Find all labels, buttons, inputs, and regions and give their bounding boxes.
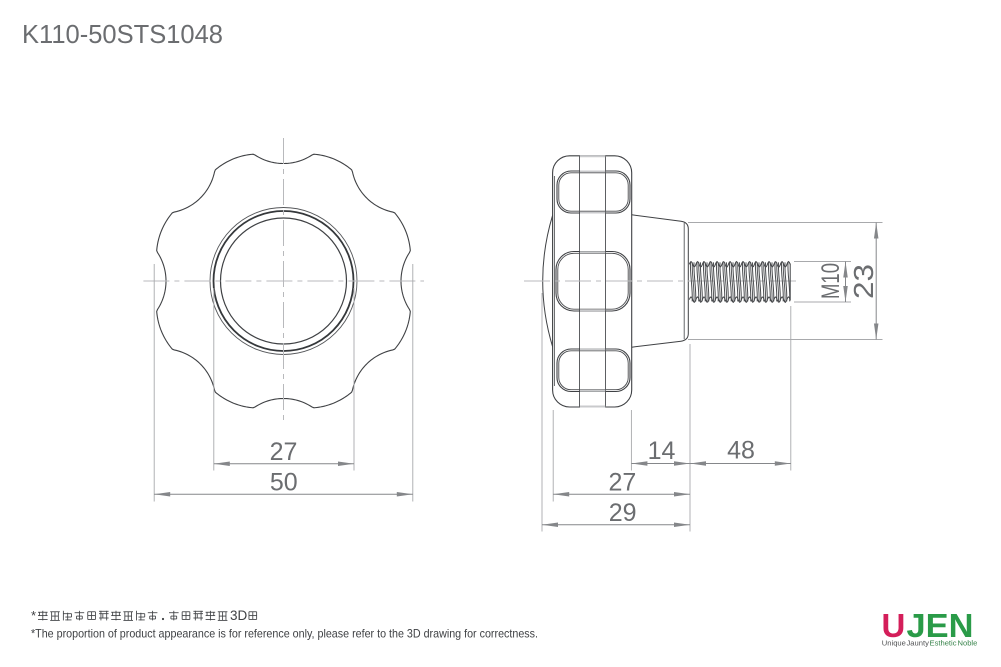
svg-text:27: 27 — [608, 469, 636, 497]
svg-text:3D: 3D — [230, 608, 248, 623]
svg-text:50: 50 — [270, 469, 298, 497]
svg-text:Jaunty: Jaunty — [907, 639, 930, 648]
svg-text:Unique: Unique — [882, 639, 906, 648]
svg-text:K110-50STS1048: K110-50STS1048 — [22, 19, 223, 49]
svg-text:*: * — [31, 608, 36, 623]
svg-text:48: 48 — [727, 437, 755, 465]
svg-text:M10: M10 — [817, 263, 845, 299]
svg-text:*The proportion of product app: *The proportion of product appearance is… — [31, 627, 538, 641]
svg-text:14: 14 — [648, 437, 676, 465]
svg-text:29: 29 — [609, 499, 637, 527]
svg-text:Esthetic: Esthetic — [930, 639, 957, 648]
svg-text:23: 23 — [848, 264, 879, 299]
svg-text:Noble: Noble — [958, 639, 978, 648]
svg-text:27: 27 — [270, 438, 298, 466]
